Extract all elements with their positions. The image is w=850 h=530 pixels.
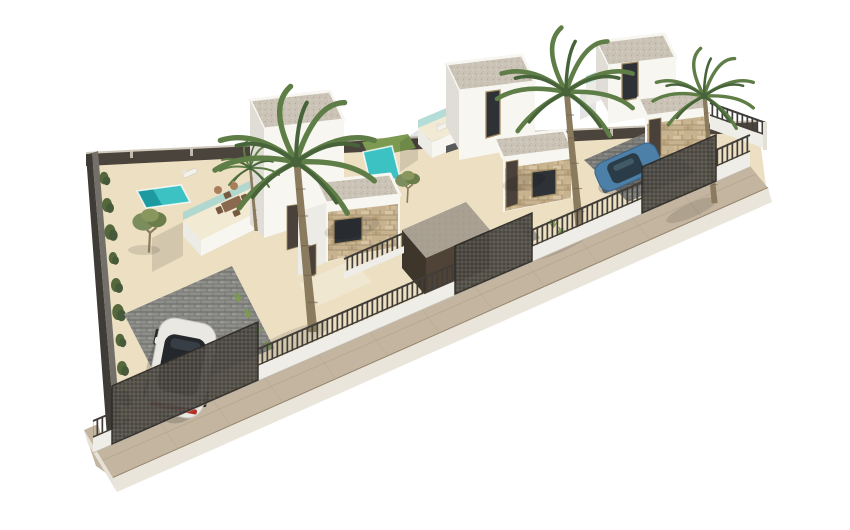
villa-3-window (622, 62, 638, 101)
pouf (214, 186, 222, 194)
render-canvas (0, 0, 850, 530)
fence-corner-post (763, 122, 767, 150)
architectural-render (0, 0, 850, 530)
